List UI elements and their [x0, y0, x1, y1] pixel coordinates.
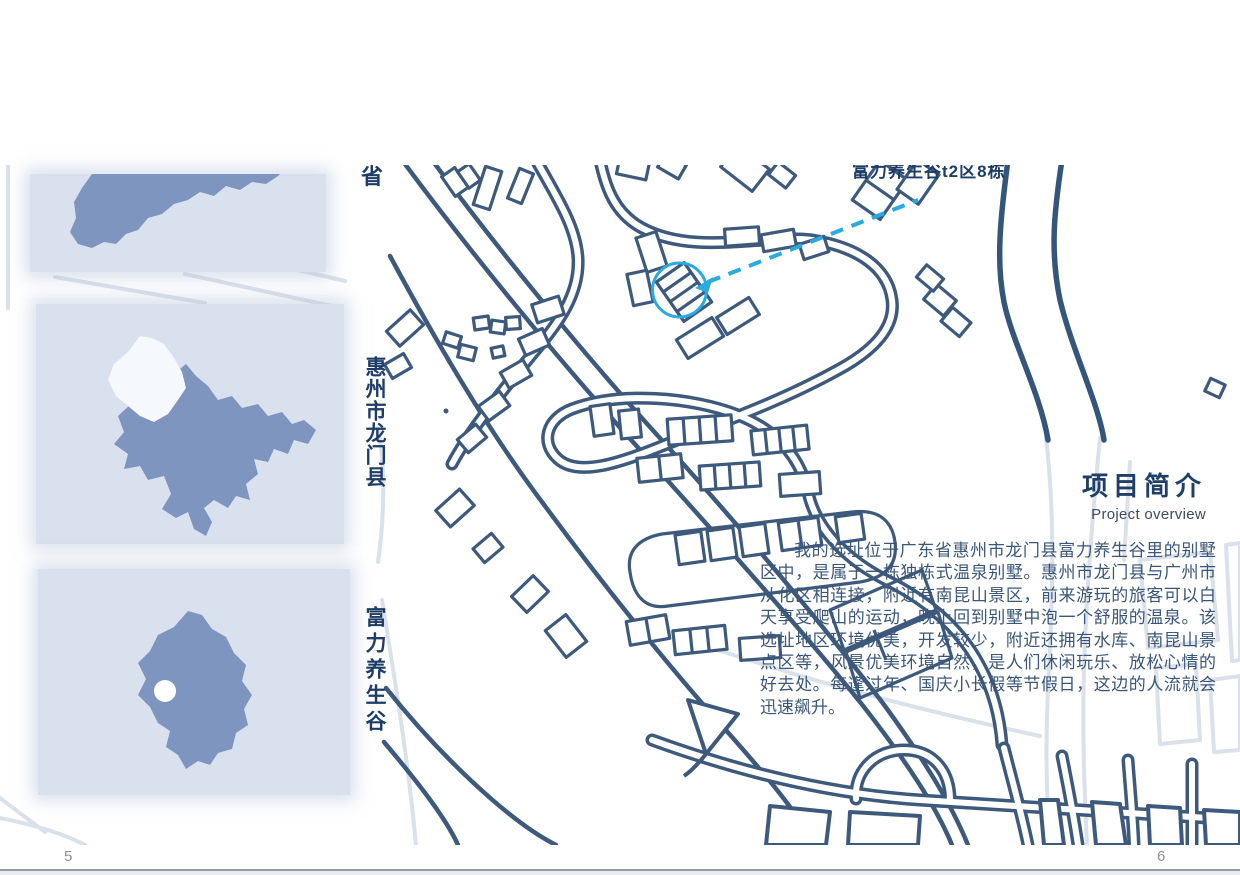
city-shape	[36, 304, 344, 544]
county-shape	[38, 569, 350, 795]
province-shape	[30, 174, 326, 272]
site-callout-label: 富力养生谷t2区8栋	[852, 165, 1006, 182]
footer-divider-light	[0, 871, 1240, 875]
page-subtitle: Project overview	[1082, 506, 1206, 523]
county-map-thumbnail	[38, 569, 350, 795]
site-dot-marker	[154, 680, 176, 702]
overview-title-block: 项目简介 Project overview	[1082, 466, 1206, 523]
page-number-right: 6	[1157, 848, 1165, 865]
page-title: 项目简介	[1082, 466, 1206, 503]
city-map-thumbnail	[36, 304, 344, 544]
page-number-left: 5	[64, 848, 72, 865]
river-lines	[1000, 165, 1104, 440]
overview-paragraph: 我的选址位于广东省惠州市龙门县富力养生谷里的别墅区中，是属于一栋独栋式温泉别墅。…	[760, 540, 1216, 719]
province-map-thumbnail	[30, 174, 326, 272]
label-fuli-valley: 富力养生谷	[361, 606, 387, 736]
label-huizhou-longmen: 惠州市龙门县	[361, 356, 387, 488]
clipped-province-char: 省	[361, 165, 383, 191]
